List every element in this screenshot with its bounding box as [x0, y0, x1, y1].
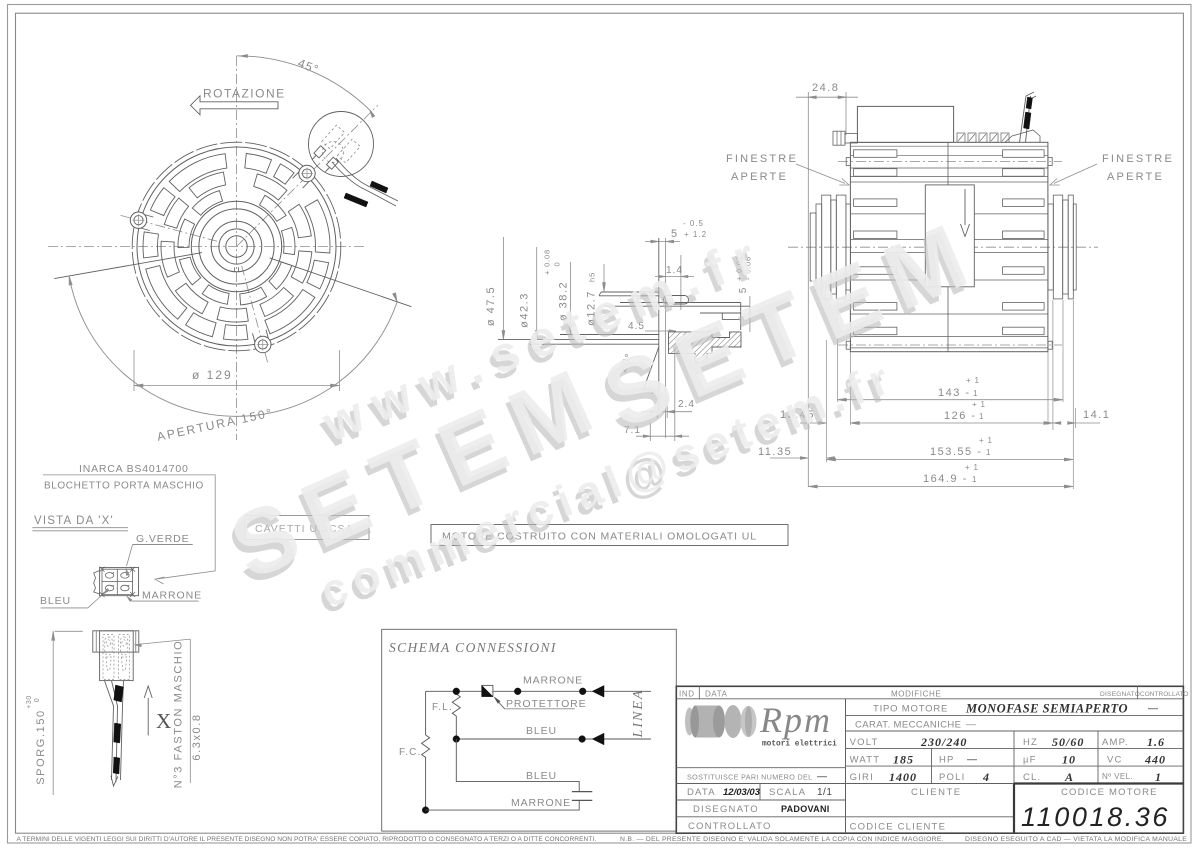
svg-text:—: — [967, 755, 977, 766]
svg-text:F.C.: F.C. [399, 747, 422, 758]
svg-text:—: — [966, 720, 976, 731]
svg-text:Rpm: Rpm [759, 700, 832, 740]
svg-text:BLOCHETTO PORTA MASCHIO: BLOCHETTO PORTA MASCHIO [44, 481, 204, 492]
svg-text:1/1: 1/1 [817, 787, 832, 798]
svg-text:HP: HP [939, 755, 955, 766]
svg-text:A TERMINI DELLE VIGENTI LEGGI: A TERMINI DELLE VIGENTI LEGGI SUI DIRITT… [17, 836, 597, 843]
svg-text:h5: h5 [588, 272, 597, 282]
svg-text:CARAT. MECCANICHE: CARAT. MECCANICHE [855, 720, 961, 731]
svg-text:INARCA BS4014700: INARCA BS4014700 [79, 463, 189, 475]
svg-text:DATA: DATA [705, 689, 728, 698]
svg-text:SPORG.150: SPORG.150 [35, 709, 47, 785]
svg-text:+ 1.2: + 1.2 [684, 230, 707, 239]
svg-text:1: 1 [973, 389, 978, 398]
svg-text:APERTE: APERTE [731, 171, 788, 183]
svg-text:MARRONE: MARRONE [511, 797, 571, 809]
svg-text:AMP.: AMP. [1102, 737, 1129, 748]
svg-text:24.8: 24.8 [812, 82, 839, 94]
svg-text:ø 129: ø 129 [192, 368, 233, 382]
svg-text:SCALA: SCALA [769, 787, 806, 798]
svg-text:185: 185 [893, 753, 914, 767]
svg-text:IND: IND [679, 689, 695, 698]
svg-text:10: 10 [1062, 753, 1076, 767]
svg-text:440: 440 [1144, 753, 1166, 767]
svg-text:+ 1: + 1 [966, 376, 980, 385]
svg-text:TIPO MOTORE: TIPO MOTORE [873, 704, 948, 715]
svg-text:12/03/03: 12/03/03 [723, 787, 761, 798]
svg-text:1: 1 [972, 475, 977, 484]
svg-text:164.9 -: 164.9 - [923, 473, 968, 485]
svg-text:PROTETTORE: PROTETTORE [506, 698, 587, 710]
svg-text:1: 1 [986, 448, 991, 457]
svg-text:0: 0 [34, 698, 41, 703]
svg-text:F.L.: F.L. [432, 702, 453, 713]
svg-text:- 0.5: - 0.5 [683, 219, 704, 228]
svg-text:—: — [1148, 704, 1158, 715]
svg-text:GIRI: GIRI [850, 772, 874, 783]
svg-text:LINEA: LINEA [631, 689, 646, 739]
svg-text:X: X [156, 709, 171, 733]
svg-text:FINESTRE: FINESTRE [726, 153, 798, 165]
svg-text:A: A [1064, 770, 1074, 784]
svg-text:126 -: 126 - [944, 410, 977, 422]
svg-text:CONTROLLATO: CONTROLLATO [688, 821, 772, 832]
svg-text:0: 0 [553, 262, 562, 267]
svg-text:CODICE CLIENTE: CODICE CLIENTE [850, 822, 947, 833]
svg-text:110018.36: 110018.36 [1021, 802, 1170, 832]
svg-text:1: 1 [1155, 770, 1162, 784]
svg-text:BLEU: BLEU [526, 725, 557, 737]
svg-text:+30: +30 [26, 695, 33, 709]
svg-text:+ 1: + 1 [972, 400, 986, 409]
svg-text:N.B. — DEL PRESENTE DISEGNO E': N.B. — DEL PRESENTE DISEGNO E' VALIDA SO… [620, 836, 944, 843]
svg-text:SOSTITUISCE PARI NUMERO DEL: SOSTITUISCE PARI NUMERO DEL [687, 773, 813, 782]
svg-text:BLEU: BLEU [526, 770, 557, 782]
svg-text:motori elettrici: motori elettrici [762, 741, 837, 749]
svg-text:MARRONE: MARRONE [523, 675, 583, 687]
svg-text:CONTROLLATO: CONTROLLATO [1140, 691, 1188, 698]
svg-text:143 -: 143 - [938, 387, 971, 399]
svg-text:DISEGNATO: DISEGNATO [693, 804, 759, 815]
svg-text:CLIENTE: CLIENTE [911, 787, 962, 798]
svg-text:MONOFASE SEMIAPERTO: MONOFASE SEMIAPERTO [965, 702, 1128, 716]
svg-text:µF: µF [1023, 755, 1037, 766]
svg-text:VISTA DA 'X': VISTA DA 'X' [34, 515, 114, 527]
svg-text:4: 4 [982, 770, 990, 784]
svg-text:ROTAZIONE: ROTAZIONE [203, 87, 286, 101]
svg-text:—: — [817, 772, 828, 783]
svg-text:CODICE MOTORE: CODICE MOTORE [1061, 787, 1158, 798]
svg-text:N°3 FASTON MASCHIO: N°3 FASTON MASCHIO [173, 640, 185, 789]
svg-text:MARRONE: MARRONE [142, 590, 202, 602]
svg-text:+ 1: + 1 [979, 436, 993, 445]
svg-text:CL.: CL. [1023, 772, 1041, 783]
svg-text:G.VERDE: G.VERDE [136, 533, 190, 545]
svg-text:SCHEMA CONNESSIONI: SCHEMA CONNESSIONI [389, 640, 557, 655]
svg-text:+ 1: + 1 [965, 463, 979, 472]
svg-text:PADOVANI: PADOVANI [781, 804, 830, 814]
svg-text:APERTE: APERTE [1107, 171, 1164, 183]
svg-text:DISEGNATO: DISEGNATO [1100, 691, 1140, 698]
svg-text:DATA: DATA [687, 787, 716, 798]
svg-text:Nº VEL.: Nº VEL. [1102, 772, 1133, 781]
svg-text:14.1: 14.1 [1083, 409, 1110, 421]
svg-text:+ 0.08: + 0.08 [543, 249, 552, 275]
svg-text:1.6: 1.6 [1147, 735, 1165, 749]
svg-text:ø 47.5: ø 47.5 [485, 286, 497, 326]
svg-text:FINESTRE: FINESTRE [1102, 153, 1174, 165]
svg-text:MODIFICHE: MODIFICHE [891, 689, 941, 698]
svg-text:230/240: 230/240 [920, 735, 967, 749]
svg-text:DISEGNO ESEGUITO A CAD — VIETA: DISEGNO ESEGUITO A CAD — VIETATA LA MODI… [965, 836, 1187, 843]
svg-text:WATT: WATT [850, 755, 881, 766]
svg-text:6.3x0.8: 6.3x0.8 [191, 713, 203, 760]
svg-text:1: 1 [979, 412, 984, 421]
svg-text:BLEU: BLEU [40, 595, 71, 607]
svg-text:1400: 1400 [889, 770, 917, 784]
svg-text:VC: VC [1107, 755, 1123, 766]
svg-text:POLI: POLI [939, 772, 965, 783]
svg-text:5: 5 [671, 228, 678, 240]
svg-text:153.55 -: 153.55 - [930, 446, 982, 458]
svg-text:VOLT: VOLT [850, 737, 879, 748]
svg-text:HZ: HZ [1023, 737, 1038, 748]
svg-text:50/60: 50/60 [1052, 735, 1084, 749]
